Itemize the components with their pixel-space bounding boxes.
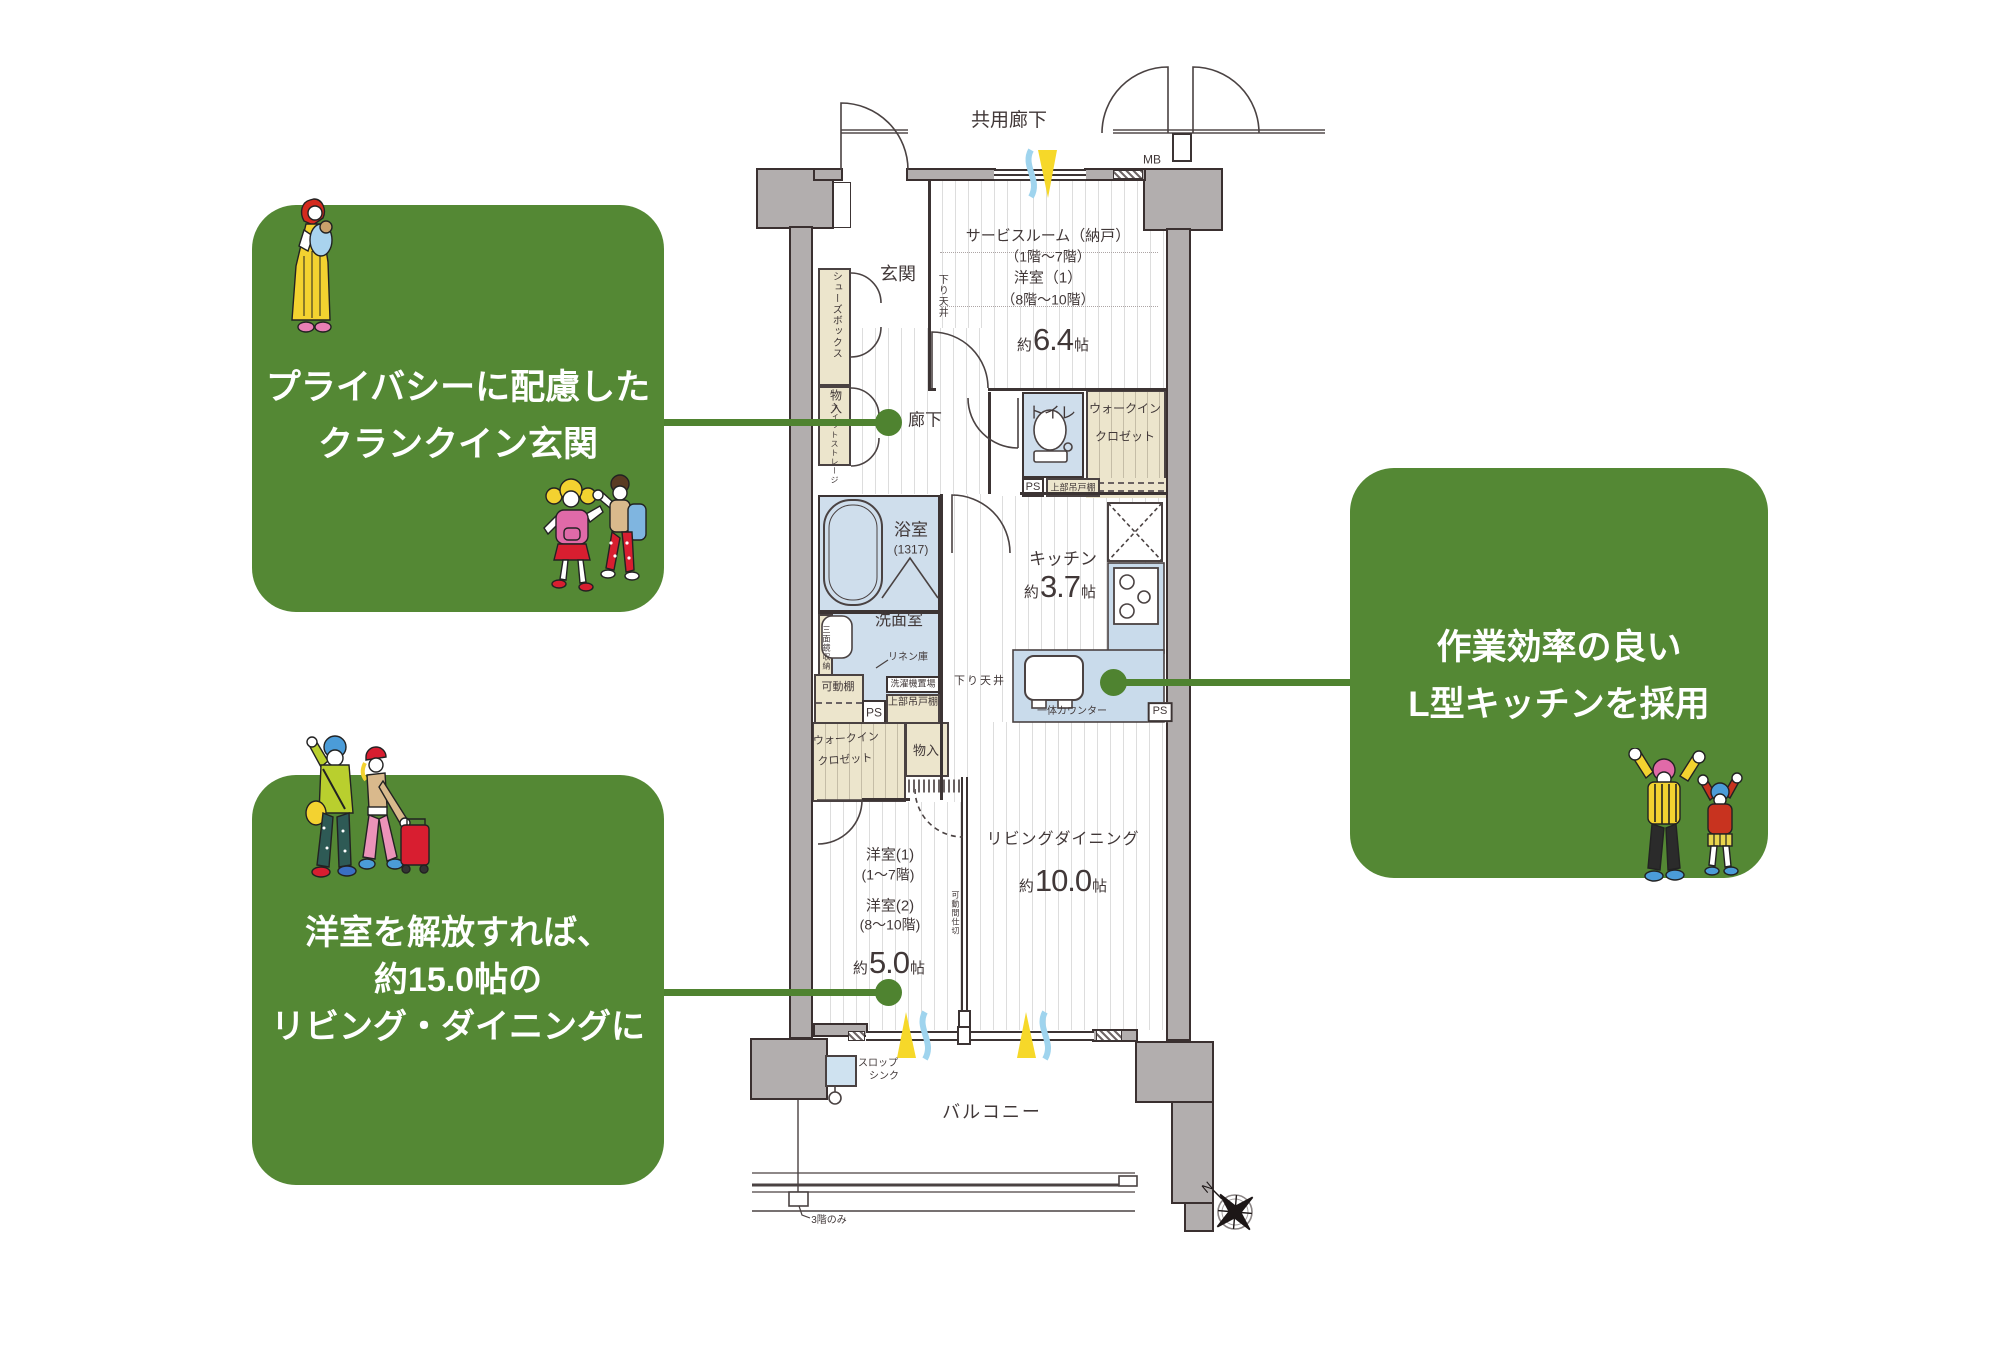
callout-kitchen-line1: 作業効率の良い — [1350, 620, 1768, 677]
label-bedroom-2f: (8〜10階) — [860, 916, 921, 934]
label-washroom: 洗面室 — [875, 611, 923, 631]
toilet-door-icon — [968, 398, 1018, 448]
label-balcony: バルコニー — [942, 1101, 1042, 1124]
bath-door-icon — [882, 558, 938, 598]
label-bath-size: (1317) — [894, 543, 929, 558]
page: { "colors": { "accent_green": "#548834",… — [0, 0, 2000, 1351]
connector-kitchen — [1113, 679, 1350, 686]
label-shoes-box: シューズボックス — [829, 271, 842, 359]
neighbor-doors-icon — [1102, 67, 1259, 133]
slop-sink-icon — [826, 1056, 856, 1104]
label-washer: 洗濯機置場 — [890, 678, 935, 689]
label-ps-wash: PS — [866, 706, 882, 721]
label-slop-sink-1: スロップ — [858, 1058, 898, 1071]
label-fit-storage: フィットストレージ — [829, 404, 839, 485]
label-down-ceiling-service: 下り天井 — [935, 274, 948, 318]
label-bedroom-2: 洋室(2) — [866, 898, 914, 917]
label-genkan: 玄関 — [880, 263, 916, 286]
label-service-altfloors: （8階〜10階） — [1001, 291, 1094, 309]
service-area-value: 6.4 — [1032, 322, 1074, 358]
label-service-floors: （1階〜7階） — [1005, 248, 1091, 266]
callout-open-living-line3: リビング・ダイニングに — [252, 1004, 664, 1051]
label-living: リビングダイニング — [986, 830, 1139, 850]
label-storage-lower: 物入 — [913, 743, 939, 759]
service-area-unit: 帖 — [1074, 334, 1089, 355]
kitchen-area-value: 3.7 — [1039, 569, 1081, 605]
couple-suitcase-illustration — [283, 733, 435, 885]
callout-privacy-line2: クランクイン玄関 — [252, 417, 664, 474]
living-area-unit: 帖 — [1092, 875, 1107, 896]
label-kitchen: キッチン — [1029, 548, 1097, 569]
label-wic-upper-1: ウォークイン — [1089, 402, 1161, 417]
label-bath: 浴室 — [894, 519, 928, 540]
label-service-area: 約 6.4 帖 — [1017, 322, 1089, 358]
label-service-name: サービスルーム（納戸） — [966, 228, 1131, 247]
label-service-altname: 洋室（1） — [1014, 270, 1082, 289]
label-toilet: トイレ — [1028, 404, 1076, 424]
label-down-ceiling-hall: 下り天井 — [954, 675, 1006, 689]
linen-leader — [876, 660, 888, 668]
callout-kitchen-line2: L型キッチンを採用 — [1350, 677, 1768, 734]
entrance-door-icon — [841, 103, 908, 170]
closet-doors-icon — [851, 273, 881, 466]
label-upper-cabinet-wash: 上部吊戸棚 — [888, 697, 938, 710]
service-door-icon — [932, 332, 988, 388]
label-mirror-storage: 三面鏡収納 — [821, 626, 831, 671]
bedroom-area-unit: 帖 — [910, 957, 925, 978]
connector-entrance — [663, 419, 888, 426]
connector-living-dot — [875, 979, 902, 1006]
label-third-floor-only: 3階のみ — [811, 1215, 847, 1228]
connector-kitchen-dot — [1100, 669, 1127, 696]
living-area-prefix: 約 — [1019, 875, 1034, 896]
connector-living — [663, 989, 888, 996]
stove-icon — [1114, 568, 1158, 624]
kitchen-area-unit: 帖 — [1081, 581, 1096, 602]
label-living-area: 約 10.0 帖 — [1019, 863, 1107, 899]
callout-open-living-line1: 洋室を解放すれば、 — [252, 910, 664, 957]
bedroom-door-icon — [817, 800, 862, 844]
label-bedroom-1: 洋室(1) — [866, 847, 914, 866]
label-slop-sink-2: シンク — [869, 1071, 899, 1084]
label-movable-shelf: 可動棚 — [822, 681, 855, 695]
label-upper-cabinet-toilet: 上部吊戸棚 — [1050, 482, 1095, 493]
label-common-corridor: 共用廊下 — [971, 109, 1047, 133]
sun-breeze-icon-top — [1029, 150, 1057, 198]
compass-north-label: N — [1199, 1178, 1216, 1196]
fridge-space-icon — [1108, 503, 1162, 561]
label-wic-upper-2: クロゼット — [1095, 430, 1155, 445]
partition-opening-icon — [915, 789, 963, 837]
school-kids-illustration — [540, 468, 652, 600]
bathtub-icon — [824, 500, 882, 605]
callout-open-living-line2: 約15.0帖の — [252, 957, 664, 1004]
label-ps-kitchen: PS — [1148, 702, 1173, 722]
label-kitchen-area: 約 3.7 帖 — [1024, 569, 1096, 605]
label-mb: MB — [1143, 153, 1161, 168]
connector-entrance-dot — [875, 409, 902, 436]
label-corridor: 廊下 — [908, 409, 942, 430]
label-counter: 一体カウンター — [1037, 706, 1107, 719]
compass-icon: N — [1199, 1178, 1268, 1244]
bedroom-area-prefix: 約 — [853, 957, 868, 978]
bedroom-area-value: 5.0 — [868, 945, 910, 981]
kitchen-area-prefix: 約 — [1024, 581, 1039, 602]
label-bedroom-1f: (1〜7階) — [862, 866, 915, 884]
mother-baby-illustration — [282, 196, 344, 338]
sun-breeze-icon-bedroom — [897, 1012, 928, 1059]
living-area-value: 10.0 — [1034, 863, 1092, 899]
service-area-prefix: 約 — [1017, 334, 1032, 355]
cheering-kids-illustration — [1618, 748, 1750, 895]
label-linen: リネン庫 — [888, 652, 928, 665]
kitchen-door-icon — [952, 495, 1010, 553]
label-bedroom-area: 約 5.0 帖 — [853, 945, 925, 981]
callout-privacy-line1: プライバシーに配慮した — [252, 360, 664, 417]
sun-breeze-icon-living — [1017, 1012, 1048, 1059]
label-partition: 可動間仕切 — [950, 891, 960, 936]
label-ps-toilet: PS — [1026, 481, 1041, 495]
